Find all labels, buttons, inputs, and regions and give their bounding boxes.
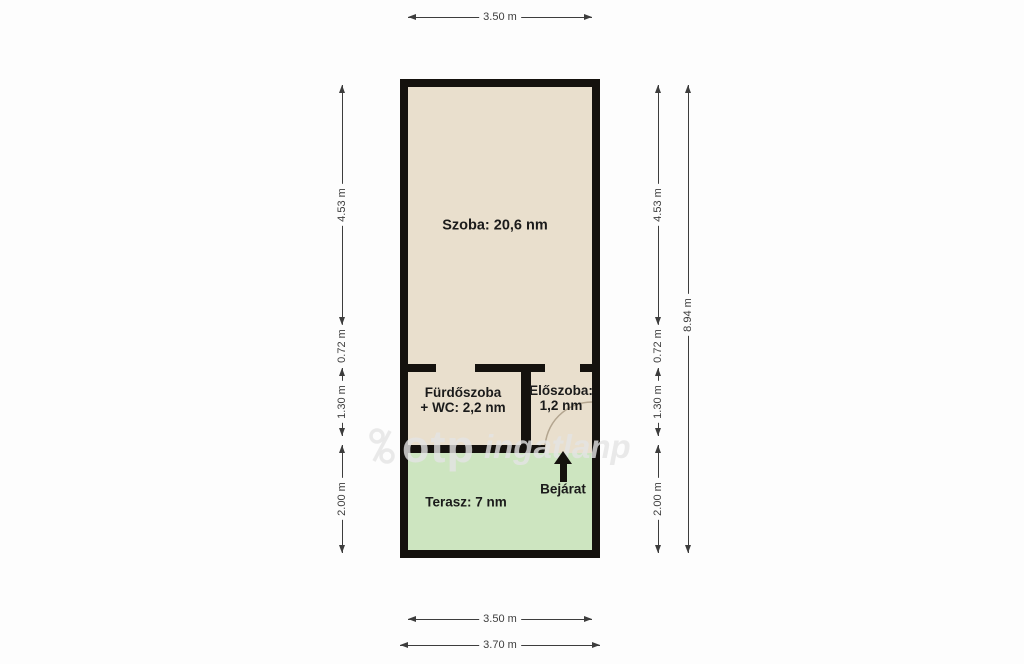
dimension-label-bottom-outer: 3.70 m bbox=[479, 639, 521, 651]
dimension-label-right-1: 4.53 m bbox=[652, 184, 664, 226]
floorplan-canvas: otp ingatlanp Szoba: 20,6 nm Fürdőszoba … bbox=[0, 0, 1024, 664]
otp-logo-mark-icon bbox=[369, 427, 395, 465]
room-label-terasz: Terasz: 7 nm bbox=[425, 495, 507, 510]
room-label-szoba: Szoba: 20,6 nm bbox=[442, 219, 548, 234]
dimension-label-right-2: 0.72 m bbox=[652, 325, 664, 367]
dimension-label-bottom-inner: 3.50 m bbox=[479, 613, 521, 625]
dimension-label-left-4: 2.00 m bbox=[336, 478, 348, 520]
dimension-label-top: 3.50 m bbox=[479, 11, 521, 23]
room-label-furdoszoba-line1: Fürdőszoba bbox=[420, 385, 505, 400]
arrow-head bbox=[554, 451, 572, 464]
wall-bath-terrace bbox=[408, 445, 545, 453]
dimension-label-right-4: 2.00 m bbox=[652, 478, 664, 520]
dimension-label-right-total: 8.94 m bbox=[682, 294, 694, 336]
up-arrow-icon bbox=[554, 451, 572, 482]
dimension-label-right-3: 1.30 m bbox=[652, 381, 664, 423]
room-label-furdoszoba: Fürdőszoba + WC: 2,2 nm bbox=[420, 385, 505, 415]
dimension-label-left-3: 1.30 m bbox=[336, 381, 348, 423]
wall-szoba-bath-left bbox=[408, 364, 436, 372]
entrance-label: Bejárat bbox=[540, 482, 586, 497]
wall-szoba-bath-middle bbox=[475, 364, 545, 372]
arrow-shaft bbox=[560, 464, 567, 482]
dimension-label-left-2: 0.72 m bbox=[336, 325, 348, 367]
room-label-eloszoba-line1: Előszoba: bbox=[529, 383, 593, 398]
room-label-furdoszoba-line2: + WC: 2,2 nm bbox=[420, 400, 505, 415]
dimension-label-left-1: 4.53 m bbox=[336, 184, 348, 226]
room-label-eloszoba-line2: 1,2 nm bbox=[529, 398, 593, 413]
room-label-eloszoba: Előszoba: 1,2 nm bbox=[529, 383, 593, 413]
wall-szoba-hall-right bbox=[580, 364, 592, 372]
